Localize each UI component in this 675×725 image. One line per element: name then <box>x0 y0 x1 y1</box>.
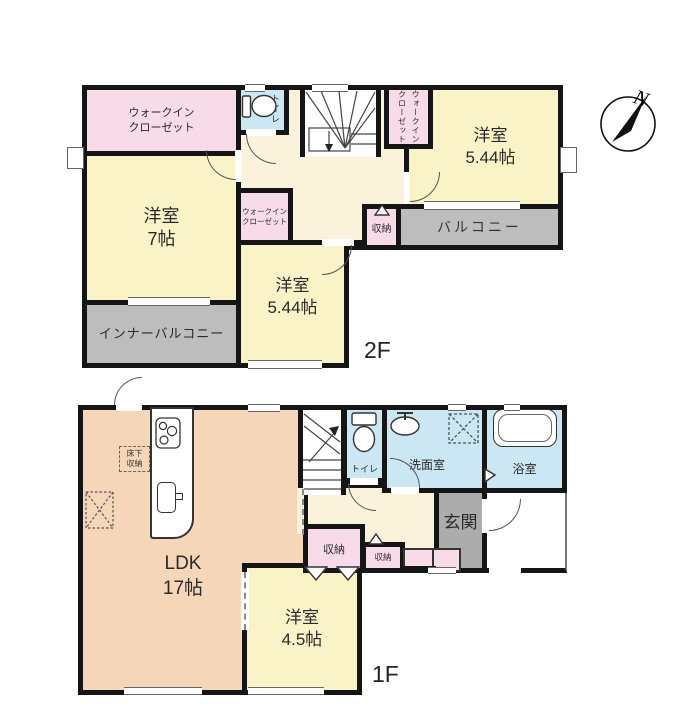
porch-step-opening <box>489 567 521 574</box>
room-label: インナーバルコニー <box>99 326 225 343</box>
window <box>312 84 348 92</box>
room-walk-in-closet-mid: ウォークイン クローゼット <box>236 188 293 245</box>
room-label: 玄関 <box>444 492 478 533</box>
stairs-2f <box>300 85 381 157</box>
room-label: トイレ <box>347 462 382 475</box>
door-opening <box>116 404 142 411</box>
window <box>560 147 577 173</box>
washbasin-icon <box>388 408 422 438</box>
floor-label-1f: 1F <box>372 661 399 688</box>
room-label: LDK 17帖 <box>121 552 245 601</box>
refrigerator-area <box>85 491 114 529</box>
window <box>248 404 280 412</box>
door-opening <box>235 150 242 182</box>
front-door-opening <box>482 499 489 533</box>
room-label: 洋室 4.5帖 <box>282 607 323 651</box>
window <box>428 567 456 574</box>
room-label: 収納 <box>323 541 345 557</box>
window <box>245 84 265 92</box>
floor-label-2f: 2F <box>364 337 391 364</box>
compass: N <box>594 84 668 156</box>
room-label: 洋室 7帖 <box>144 205 180 252</box>
door-arc <box>114 377 142 405</box>
floor-plan-canvas: ウォークイン クローゼット 洋室 7帖 インナーバルコニー 洋室 5.44帖 洋… <box>0 0 675 725</box>
room-label: 洋室 5.44帖 <box>451 125 515 169</box>
toilet-icon <box>241 92 279 120</box>
window <box>124 687 202 695</box>
window <box>67 147 84 169</box>
door-opening <box>391 487 419 494</box>
window <box>448 404 466 411</box>
room-label: 洋室 5.44帖 <box>267 275 317 333</box>
room-label: バルコニー <box>437 217 522 237</box>
washing-machine-area <box>448 413 479 444</box>
stairs-icon <box>305 90 376 154</box>
bathtub-icon <box>493 409 557 447</box>
ldk-hall-divider <box>302 489 304 535</box>
window <box>248 360 322 369</box>
stairs-icon <box>303 410 341 492</box>
window <box>504 404 520 411</box>
room-label: 収納 <box>374 552 391 563</box>
room-label: ウォークイン クローゼット <box>129 106 195 135</box>
room-storage-small: 収納 <box>361 542 405 573</box>
stairs-1f <box>298 405 346 495</box>
room-label: 収納 <box>372 220 392 235</box>
closet-door-icon <box>304 566 328 581</box>
stove-icon <box>155 417 181 449</box>
room-western-45: 洋室 4.5帖 <box>242 563 362 695</box>
room-walk-in-closet-ne: ウォークイン クローゼット <box>384 85 433 149</box>
bathtub-inner <box>498 414 552 442</box>
faucet-icon <box>175 493 183 500</box>
folding-door-icon <box>374 204 390 216</box>
bath-door-icon <box>484 468 496 483</box>
underfloor-storage: 床下 収納 <box>119 446 150 472</box>
folding-door-icon <box>368 533 384 545</box>
room-walk-in-closet-nw: ウォークイン クローゼット <box>82 85 241 156</box>
window <box>128 297 210 306</box>
room-inner-balcony: インナーバルコニー <box>82 300 241 368</box>
room-balcony-2f: バルコニー <box>396 204 563 250</box>
room-label: 浴室 <box>487 460 562 477</box>
window <box>424 201 520 210</box>
toilet-icon <box>350 411 378 455</box>
window <box>248 687 324 695</box>
closet-door-icon <box>336 566 360 581</box>
room-label: ウォークイン クローゼット <box>242 207 287 227</box>
ldk-room-divider <box>244 572 246 630</box>
room-label: 床下 収納 <box>127 449 143 469</box>
room-label: ウォークイン クローゼット <box>395 90 422 144</box>
sink-icon <box>157 482 176 513</box>
